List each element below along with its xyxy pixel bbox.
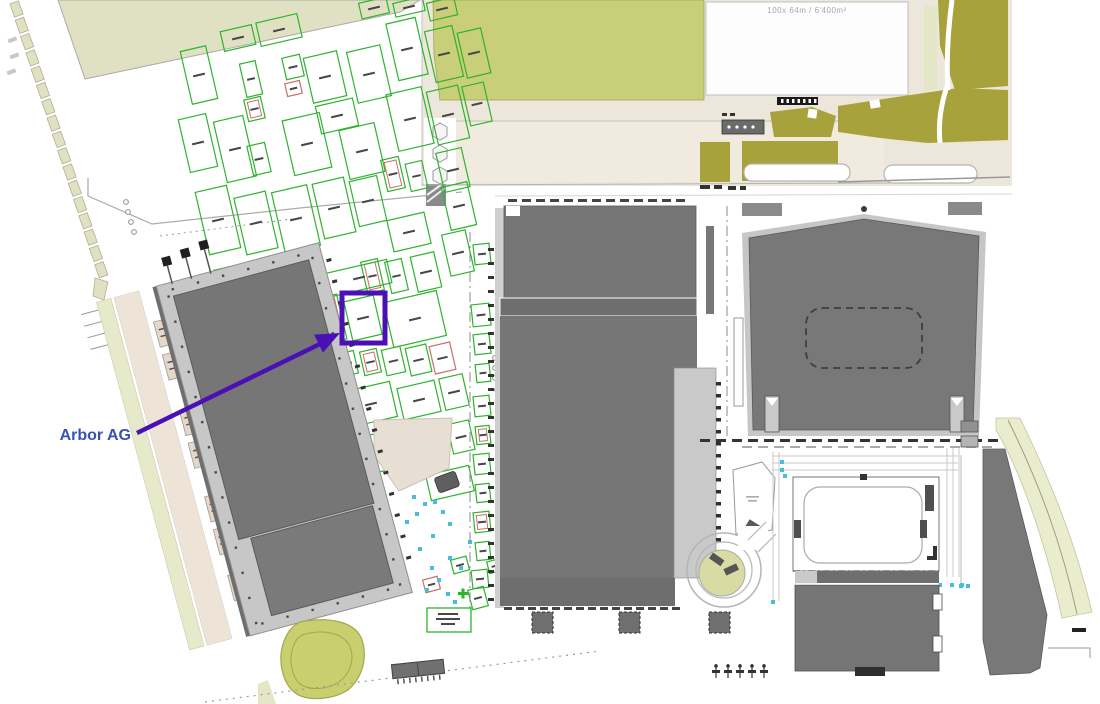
utility-dot <box>431 534 435 538</box>
plot-dash <box>95 262 108 278</box>
facade-tick <box>389 492 395 496</box>
stall <box>349 175 387 226</box>
boundary-dash <box>988 439 998 442</box>
hall1-north-block <box>504 206 696 298</box>
stall-text-mark <box>250 221 262 226</box>
utility-dot <box>418 547 422 551</box>
plot-dash <box>31 66 44 82</box>
fence-tick <box>415 677 417 682</box>
pavilion-dot <box>735 125 738 128</box>
boundary-dash <box>758 446 768 448</box>
facade-tick <box>716 466 721 470</box>
utility-dot <box>433 500 437 504</box>
utility-dot <box>415 512 419 516</box>
boundary-dash <box>822 446 832 448</box>
rink-corner-mark <box>933 546 937 560</box>
parapet-dash <box>578 199 587 202</box>
facade-tick <box>488 346 494 349</box>
utility-dot <box>425 588 429 592</box>
utility-dot <box>423 502 427 506</box>
tree-crown <box>738 664 742 668</box>
hall2-west-lane <box>734 318 743 406</box>
stall <box>344 295 382 341</box>
hall2-bottom-dashes <box>700 439 998 448</box>
parapet-dash <box>606 199 615 202</box>
road-dash <box>700 185 710 189</box>
parapet-dash <box>660 607 668 610</box>
utility-dot <box>405 520 409 524</box>
boundary-dash <box>732 439 742 442</box>
facade-tick <box>366 407 372 411</box>
site-plan-map: 100x 64m / 6'400m² <box>0 0 1100 704</box>
fence-bar <box>391 659 445 684</box>
plot-dash <box>79 213 92 229</box>
stall-text-mark <box>448 390 460 395</box>
stall <box>360 348 382 375</box>
tree-base <box>748 670 756 673</box>
stall-text-mark <box>365 402 377 407</box>
parapet-dash <box>600 607 608 610</box>
facade-tick <box>355 364 361 368</box>
boundary-dash <box>742 446 752 448</box>
road-dash <box>714 185 722 189</box>
stall-text-mark <box>479 550 486 553</box>
green-field <box>433 0 704 100</box>
grandstand-mark <box>803 99 806 103</box>
stall <box>473 333 491 355</box>
stall <box>282 112 332 175</box>
grandstand-mark <box>787 99 790 103</box>
parapet-dash <box>540 607 548 610</box>
facade-tick <box>488 318 494 321</box>
rink-mark <box>860 474 867 480</box>
facade-tick <box>716 418 721 422</box>
parapet-dash <box>648 607 656 610</box>
kiosk-square <box>532 612 553 633</box>
stall-text-mark <box>357 316 369 321</box>
stall <box>381 346 405 376</box>
plot-dash <box>89 245 102 261</box>
stall <box>442 230 475 276</box>
utility-dot <box>780 468 784 472</box>
boundary-dash <box>716 439 726 442</box>
plot-dash <box>68 180 81 196</box>
plot-dash <box>36 82 49 98</box>
facade-tick <box>716 394 721 398</box>
plot-dash <box>20 33 33 49</box>
stall-text-mark <box>319 75 331 80</box>
hall3-building <box>795 585 939 671</box>
parapet-dash <box>676 199 685 202</box>
facade-tick <box>394 513 400 517</box>
hall3-dock <box>933 636 942 652</box>
facade-tick <box>488 276 494 279</box>
stall-text-mark <box>193 73 205 78</box>
utility-dot <box>448 522 452 526</box>
hall2-building <box>749 219 979 430</box>
stall-text-mark <box>437 356 448 360</box>
parapet-dash <box>624 607 632 610</box>
tree-symbols <box>712 664 768 678</box>
road-dash <box>728 186 736 190</box>
tree-symbol <box>760 664 768 678</box>
utility-dot <box>412 495 416 499</box>
stall-text-mark <box>453 204 465 209</box>
grandstand-mark <box>814 99 817 103</box>
stall-text-mark <box>478 521 486 524</box>
parapet-dash <box>516 607 524 610</box>
plot-dash <box>15 17 28 33</box>
facade-tick <box>400 534 406 538</box>
stall-text-mark <box>331 114 343 119</box>
post-stem <box>204 249 210 273</box>
facade-tick <box>488 290 494 293</box>
annotation-label: Arbor AG <box>60 427 131 444</box>
facade-tick <box>488 430 494 433</box>
boundary-dash <box>838 446 848 448</box>
boundary-dash <box>796 439 806 442</box>
boundary-dash <box>934 446 944 448</box>
edge-dash <box>10 52 20 59</box>
container <box>961 421 978 432</box>
fence-tick <box>421 677 423 682</box>
stall <box>385 258 409 293</box>
plot-dash <box>63 164 76 180</box>
pavilion-dot <box>727 125 730 128</box>
orchard-field <box>58 0 420 79</box>
stall <box>312 177 356 239</box>
stall <box>450 556 469 574</box>
facade-tick <box>488 444 494 447</box>
fence-tick <box>427 676 429 681</box>
hall1-sliver <box>706 226 714 314</box>
container <box>961 436 978 447</box>
facade-tick <box>716 478 721 482</box>
facade-tick <box>488 458 494 461</box>
tree-symbol <box>736 664 744 678</box>
stall-text-mark <box>476 578 484 581</box>
parapet-dash <box>672 607 680 610</box>
facade-tick <box>488 304 494 307</box>
pale-strip <box>924 6 937 90</box>
plot-dash <box>84 229 97 245</box>
stall-text-mark <box>192 141 204 146</box>
stall-text-mark <box>328 206 340 211</box>
shrub-patch <box>700 142 730 182</box>
parapet-dash <box>564 199 573 202</box>
boundary-dash <box>860 439 870 442</box>
facade-tick <box>488 500 494 503</box>
hall3-dock <box>933 594 942 610</box>
utility-dot <box>780 460 784 464</box>
fence-tick <box>409 678 411 683</box>
boundary-dash <box>774 446 784 448</box>
stall-text-mark <box>362 199 374 204</box>
facade-tick <box>406 556 412 560</box>
grandstand-mark <box>798 99 801 103</box>
stall-text-mark <box>479 492 486 495</box>
hall1-link-band <box>500 298 697 316</box>
facade-tick <box>488 570 494 573</box>
stall <box>405 344 432 376</box>
facade-tick <box>488 262 494 265</box>
utility-dot <box>771 600 775 604</box>
stall-text-mark <box>250 107 259 111</box>
stall <box>384 291 447 348</box>
boundary-dash <box>780 439 790 442</box>
stall-text-mark <box>290 217 302 222</box>
utility-dot <box>441 510 445 514</box>
plot-dash <box>10 1 23 17</box>
hall1-mid-block <box>500 316 697 368</box>
stall-cross <box>462 589 465 599</box>
facade-tick <box>488 402 494 405</box>
facade-tick <box>488 556 494 559</box>
facade-tick <box>716 454 721 458</box>
hall1-gap <box>698 226 705 314</box>
utility-dot <box>966 584 970 588</box>
stall-text-mark <box>401 47 413 52</box>
parapet-dash <box>588 607 596 610</box>
parapet-dash <box>564 607 572 610</box>
boundary-dash <box>748 439 758 442</box>
hall1-ticks-left <box>488 248 494 601</box>
post-stem <box>167 266 172 284</box>
facade-tick <box>488 598 494 601</box>
facade-tick <box>716 514 721 518</box>
stall-text-mark <box>478 253 486 256</box>
facade-tick <box>716 526 721 530</box>
plot-dash <box>58 148 71 164</box>
tree-crown <box>750 664 754 668</box>
boundary-dash <box>982 446 992 448</box>
facade-tick <box>488 542 494 545</box>
curved-road <box>744 164 850 181</box>
tree-symbol <box>712 664 720 678</box>
stall <box>387 212 431 252</box>
facade-tick <box>332 279 338 283</box>
grandstand-mark <box>809 99 812 103</box>
stall-text-mark <box>478 463 486 466</box>
stall-text-mark <box>478 343 486 346</box>
survey-bracket <box>1048 648 1090 658</box>
pavilion-mark <box>722 113 727 116</box>
tree-circle <box>124 200 129 205</box>
peak-dot <box>861 206 867 212</box>
stall-text-mark <box>455 435 466 439</box>
stall-text-mark <box>409 317 421 322</box>
stall <box>282 54 304 79</box>
comb-mark <box>84 322 101 327</box>
facade-tick <box>488 584 494 587</box>
boundary-dash <box>876 439 886 442</box>
hall-1 <box>488 199 721 610</box>
facade-tick <box>716 430 721 434</box>
parapet-dash <box>612 607 620 610</box>
utility-dot <box>959 584 963 588</box>
stall <box>475 425 491 444</box>
facade-tick <box>716 406 721 410</box>
parapet-dash <box>508 199 517 202</box>
facade-tick <box>360 386 366 390</box>
boundary-dash <box>764 439 774 442</box>
stall-text-mark <box>413 358 424 362</box>
flag-post <box>161 256 172 267</box>
plot-end-wedge <box>93 278 108 300</box>
plot-dash <box>52 131 65 147</box>
stall <box>285 80 303 96</box>
stall <box>244 96 266 121</box>
parapet-dash <box>662 199 671 202</box>
stall-text-mark <box>389 359 399 363</box>
stall <box>303 51 346 103</box>
tree-base <box>724 670 732 673</box>
hall1-notch <box>506 206 520 216</box>
stall-text-mark <box>420 270 432 275</box>
utility-dot <box>448 556 452 560</box>
facade-tick <box>488 416 494 419</box>
facade-tick <box>716 442 721 446</box>
boundary-dash <box>924 439 934 442</box>
stall <box>439 374 470 411</box>
street-line <box>495 194 1012 196</box>
hall1-top-dashes <box>508 199 685 202</box>
stall-text-mark <box>403 230 415 235</box>
fence-tick <box>403 678 405 683</box>
stall <box>397 380 441 420</box>
tree-symbol <box>748 664 756 678</box>
tree-base <box>736 670 744 673</box>
shrub-notch <box>807 108 817 118</box>
utility-dot <box>430 566 434 570</box>
hall1-south-band <box>500 578 675 606</box>
hall1-bottom-dashes <box>504 607 680 610</box>
field-dimension-label: 100x 64m / 6'400m² <box>767 6 846 15</box>
stall <box>475 363 491 382</box>
hall3-entrance-bar <box>855 667 885 676</box>
facade-tick <box>326 258 332 262</box>
boundary-dash <box>902 446 912 448</box>
stall-text-mark <box>212 218 224 223</box>
tree-crown <box>762 664 766 668</box>
plot-dash <box>26 50 39 66</box>
flag-post <box>180 248 191 259</box>
shrub-notch <box>869 99 880 109</box>
tree-crown <box>714 664 718 668</box>
stall-text-mark <box>363 72 375 77</box>
utility-dot <box>950 583 954 587</box>
stall <box>410 252 441 292</box>
boundary-dash <box>892 439 902 442</box>
rink-goal <box>794 520 801 538</box>
grandstand-mark <box>781 99 784 103</box>
parapet-dash <box>636 607 644 610</box>
tree-base <box>760 670 768 673</box>
fence-tick <box>397 679 399 684</box>
kiosk-square <box>709 612 730 633</box>
pavilion-dot <box>743 125 746 128</box>
facade-tick <box>488 528 494 531</box>
stall <box>381 156 406 191</box>
parapet-dash <box>592 199 601 202</box>
stall-text-mark <box>392 274 401 278</box>
stall-text-mark <box>356 149 368 154</box>
road-dash <box>740 186 746 190</box>
hall1-south-block <box>500 368 674 578</box>
parapet-dash <box>634 199 643 202</box>
stall-text-mark <box>412 174 421 178</box>
facade-tick <box>488 332 494 335</box>
stall <box>339 123 385 180</box>
facade-tick <box>716 382 721 386</box>
boundary-dash <box>806 446 816 448</box>
facade-tick <box>488 388 494 391</box>
stall <box>429 342 456 374</box>
boundary-dash <box>918 446 928 448</box>
grandstand-mark <box>792 99 795 103</box>
tree-symbol <box>724 664 732 678</box>
plot-dash <box>47 115 60 131</box>
facade-tick <box>488 486 494 489</box>
stall-text-mark <box>479 372 486 375</box>
stall-text-mark <box>476 314 485 317</box>
boundary-dash <box>908 439 918 442</box>
comb-mark <box>81 310 98 315</box>
market-big-stand <box>427 608 471 632</box>
stall-text-mark <box>452 251 464 256</box>
parapet-dash <box>536 199 545 202</box>
facade-tick <box>716 538 721 542</box>
boundary-dash <box>828 439 838 442</box>
boundary-dash <box>886 446 896 448</box>
pentagon-text-mark <box>748 500 757 502</box>
tree-circle <box>132 230 137 235</box>
edge-dash <box>7 68 17 75</box>
loop-island <box>699 550 745 596</box>
facade-tick <box>488 374 494 377</box>
parapet-dash <box>528 607 536 610</box>
pentagon-text-mark <box>746 496 759 498</box>
fence-tick <box>439 675 441 680</box>
pale-wedge <box>258 680 276 704</box>
stall-text-mark <box>428 583 436 587</box>
kiosk-square <box>619 612 640 633</box>
stall <box>471 569 489 589</box>
boundary-dash <box>870 446 880 448</box>
stall <box>468 586 489 609</box>
hall3-step <box>795 571 817 585</box>
ice-rink <box>804 487 922 563</box>
stall <box>473 453 491 475</box>
utility-dot <box>459 566 463 570</box>
parapet-dash <box>552 607 560 610</box>
stall-text-mark <box>413 398 425 403</box>
boundary-dash <box>940 439 950 442</box>
facade-tick <box>488 472 494 475</box>
stall-text-mark <box>479 434 486 437</box>
stall <box>213 115 256 182</box>
edge-dash <box>8 36 18 43</box>
comb-mark <box>90 345 107 350</box>
boundary-dash <box>812 439 822 442</box>
stall-text-mark <box>247 77 255 81</box>
rink-bench <box>925 485 934 511</box>
hall2-north-tab <box>948 202 982 215</box>
boundary-dash <box>854 446 864 448</box>
stall <box>473 395 491 417</box>
container-block <box>434 471 460 494</box>
survey-dash <box>1072 628 1086 632</box>
